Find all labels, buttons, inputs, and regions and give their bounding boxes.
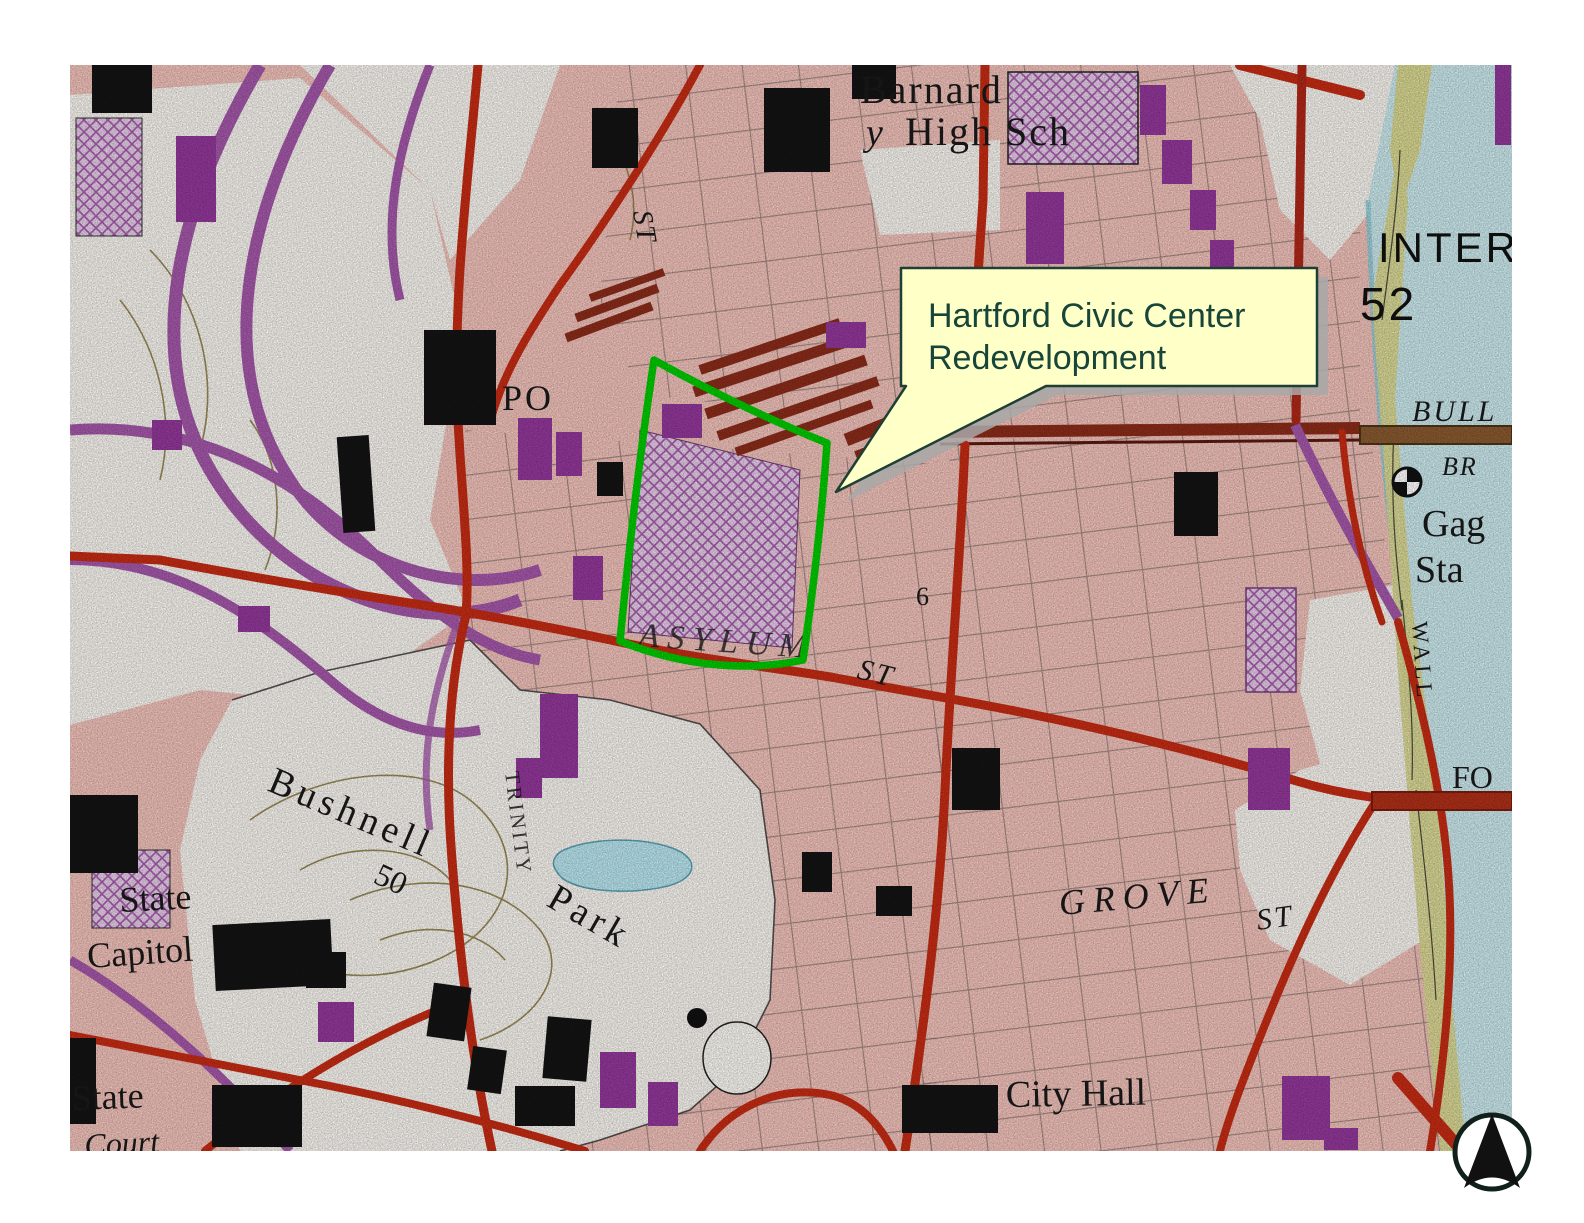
topo-map: Barnard y High Sch INTER 52 BULL BR Gag … (0, 0, 1584, 1223)
scan-noise (70, 65, 1512, 1151)
north-arrow-icon (1455, 1114, 1529, 1189)
map-canvas: Barnard y High Sch INTER 52 BULL BR Gag … (70, 65, 1519, 1163)
callout-line1: Hartford Civic Center (928, 297, 1245, 335)
screenshot: Barnard y High Sch INTER 52 BULL BR Gag … (0, 0, 1584, 1223)
callout-line2: Redevelopment (928, 339, 1167, 377)
